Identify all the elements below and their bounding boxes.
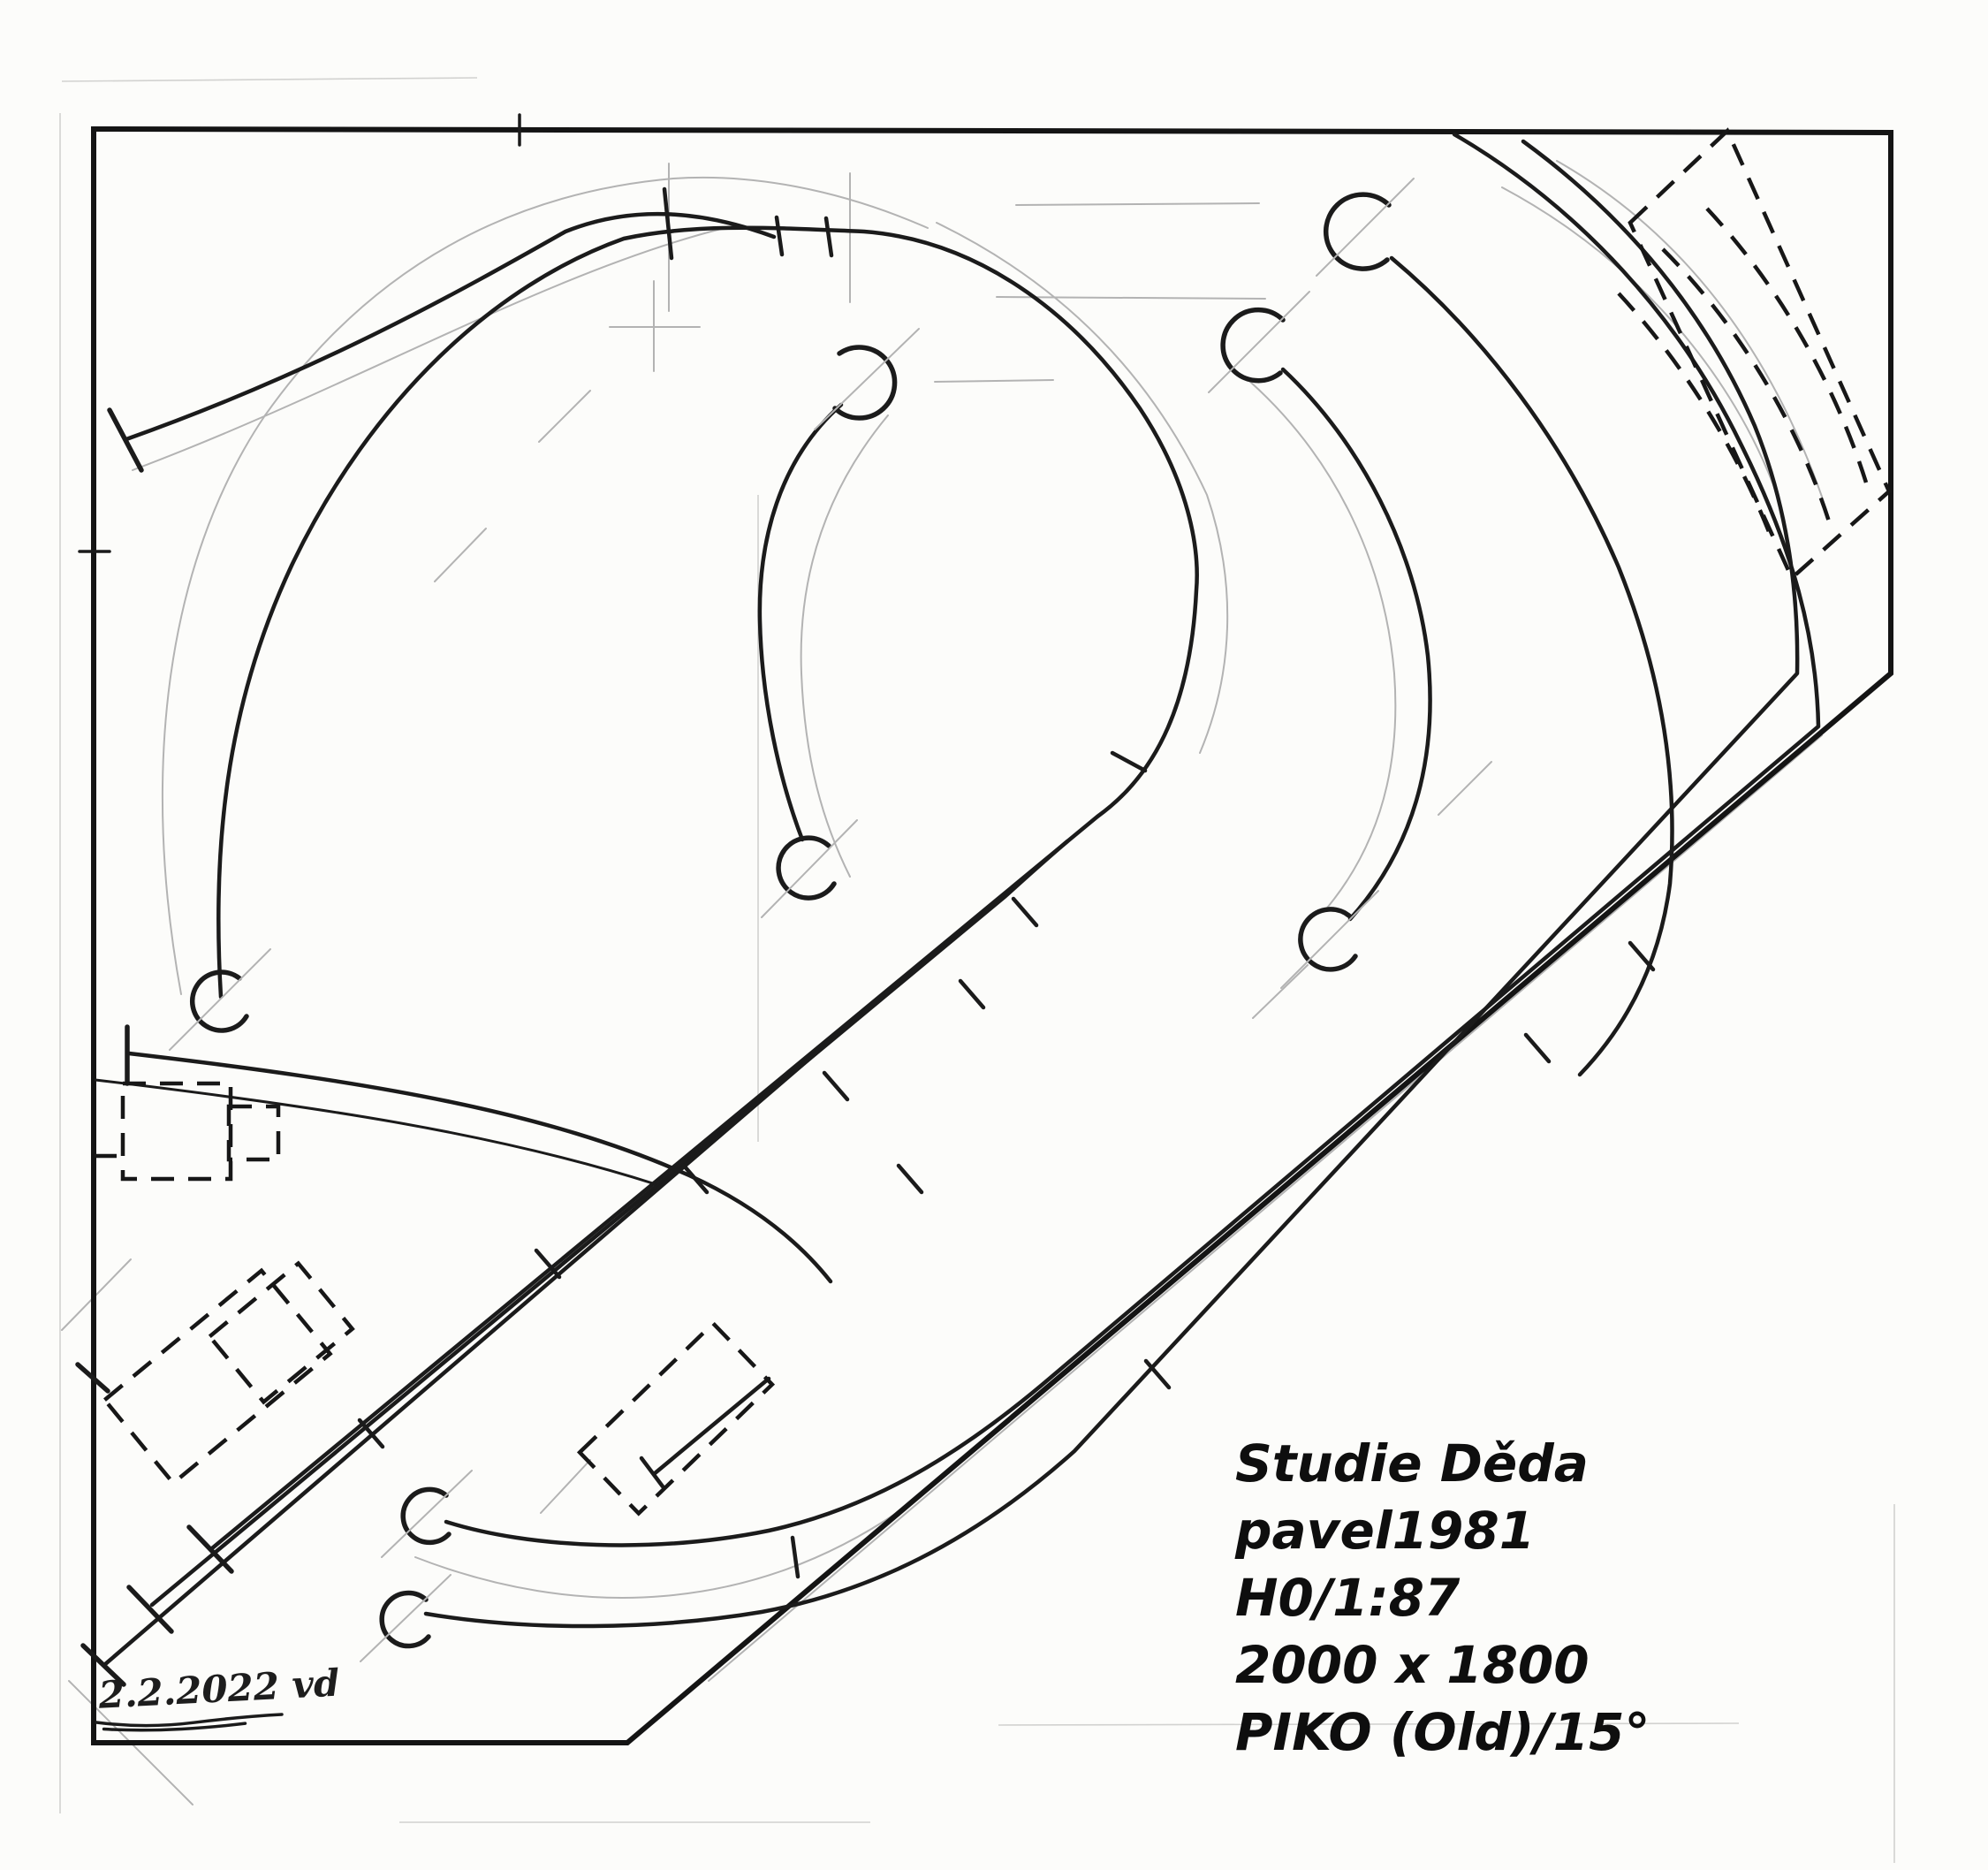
hook-icon [403,1489,449,1542]
hook-slash [360,1575,451,1661]
hook-construction-slashes [170,179,1414,1661]
title-line-1: Studie Děda [1235,1433,1589,1494]
tick [793,1538,798,1577]
track-peripheral-outer [446,134,1818,1545]
building-outline-1 [123,1083,231,1179]
title-block: Studie Děda pavel1981 H0/1:87 2000 x 180… [1234,1433,1650,1762]
building-outline-4 [209,1264,352,1402]
construction-arc-band-1 [1502,187,1778,497]
track-fan-branch-2 [104,939,954,1665]
tick [899,1166,922,1192]
title-line-3: H0/1:87 [1235,1568,1461,1628]
construction-echo-bumper-line [133,228,725,470]
construction-arc-top [265,178,928,415]
track-main-loop [212,228,1197,1548]
hook-icon [778,838,834,898]
construction-slash-3 [1253,965,1308,1018]
tick [1146,1361,1169,1387]
construction-slash-4 [1438,762,1491,815]
construction-horizontal-3 [935,380,1053,382]
construction-arc-left [163,415,265,994]
construction-cross-1 [610,281,700,371]
title-line-4: 2000 x 1800 [1235,1635,1590,1695]
title-line-2: pavel1981 [1234,1501,1535,1561]
pencil-construction-lines [60,78,1894,1863]
track-platform-stub-end [641,1458,663,1486]
tick [1630,943,1653,969]
track-band-middle [1392,258,1673,1075]
scan-top-line [62,78,477,81]
construction-arc-siding2 [1250,382,1395,912]
track-siding-1 [760,405,841,840]
signature-underline [96,1713,282,1734]
track-siding-2 [1283,369,1430,919]
buffer-stops [78,410,231,1684]
construction-bottom-curve-echo [415,1502,912,1598]
scanned-track-plan-page: Studie Děda pavel1981 H0/1:87 2000 x 180… [0,0,1988,1870]
tick [1526,1035,1549,1061]
track-peripheral-inner [426,141,1797,1626]
hook-icon [835,347,895,418]
signature-text: 2.2.2022 vd [96,1661,340,1717]
buffer-stop [110,410,141,470]
tick [826,218,831,255]
platform-outline [580,1324,772,1514]
construction-slash-5 [541,1460,590,1513]
building-outline-2 [229,1106,278,1159]
hook-slash [762,820,857,917]
tick [1112,753,1145,771]
tick [824,1073,847,1099]
tick [777,217,782,255]
track-platform-stub [654,1379,769,1474]
construction-slash-1 [539,391,590,442]
signature-block: 2.2.2022 vd [94,1661,341,1734]
construction-horizontal-1 [1016,203,1259,205]
tick [684,1166,707,1192]
rail-joint-ticks [360,189,1653,1577]
tick [960,981,983,1007]
track-plan-drawing: Studie Děda pavel1981 H0/1:87 2000 x 180… [0,0,1988,1870]
title-line-5: PIKO (Old)/15° [1235,1702,1650,1762]
construction-arc-siding1 [801,415,888,877]
track-midleft-main [129,1053,831,1281]
hook-slash [815,329,919,429]
hidden-yard-track [1707,209,1866,483]
construction-slash-2 [435,528,486,582]
tick [1013,899,1036,925]
track-end-hooks [170,179,1414,1661]
buffer-stop [189,1527,231,1571]
construction-arc-band-2 [1557,161,1822,497]
